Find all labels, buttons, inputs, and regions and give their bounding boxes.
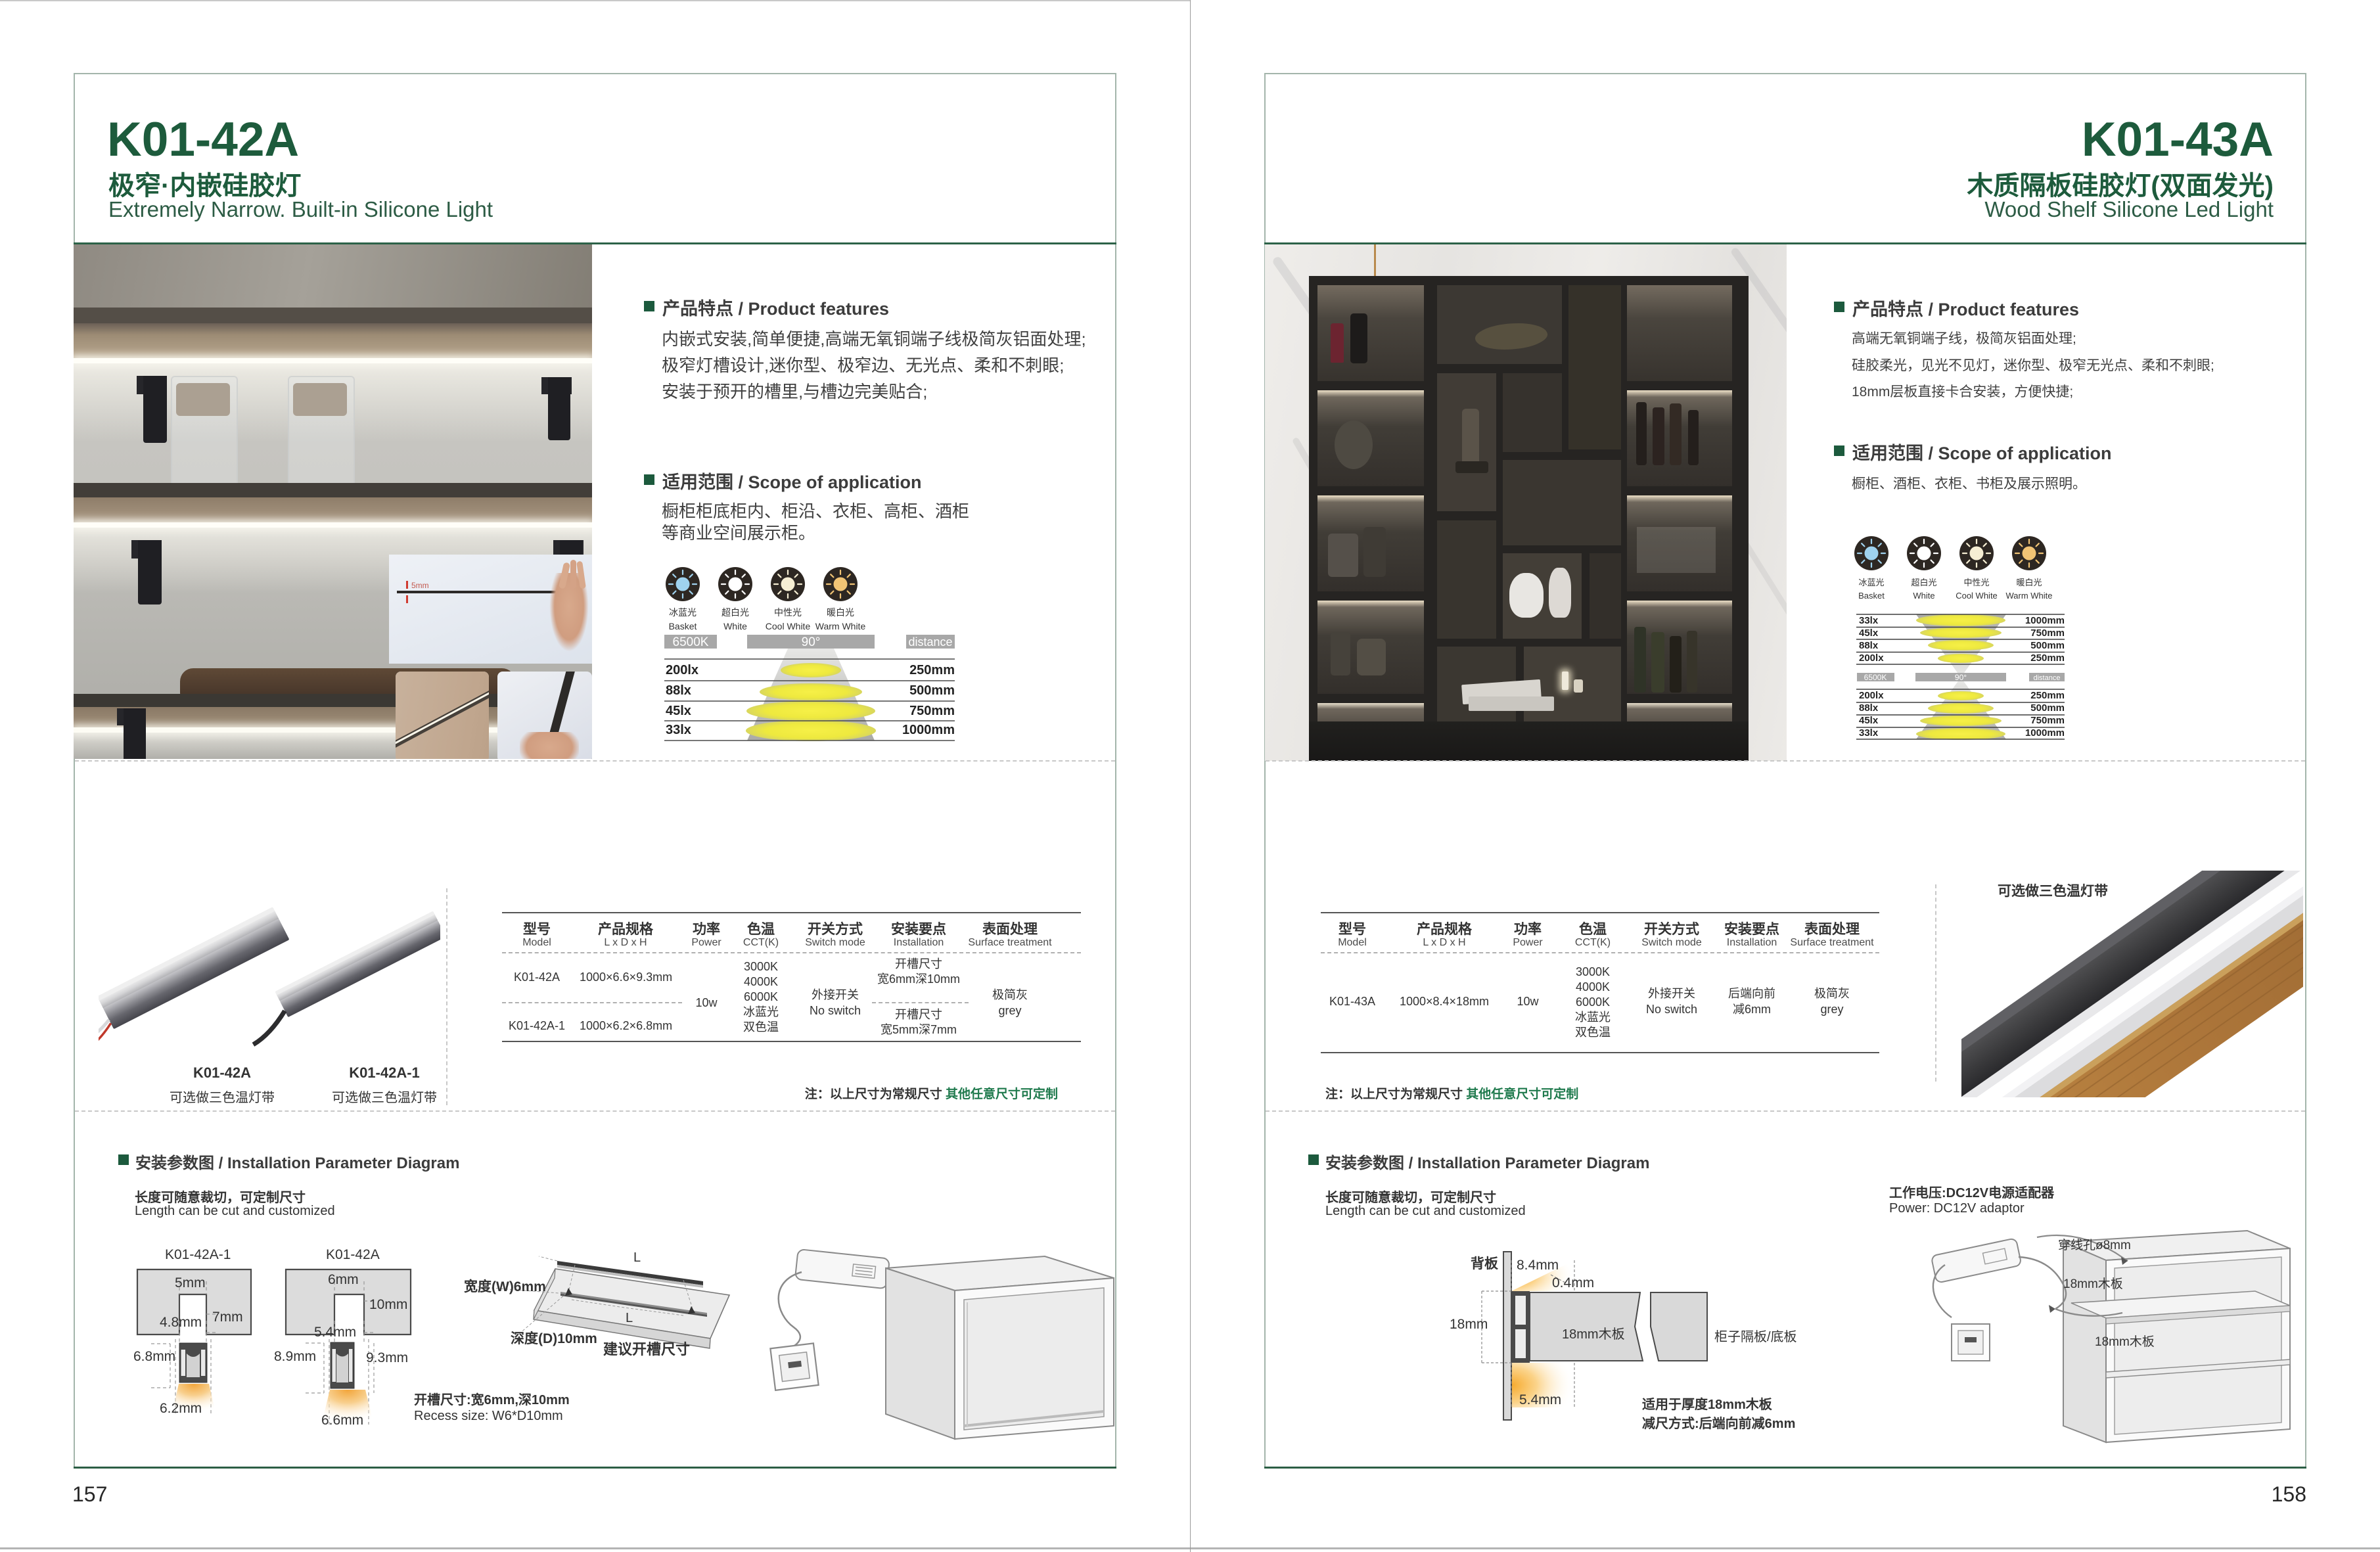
svg-text:6500K: 6500K: [673, 635, 709, 649]
svg-text:L: L: [626, 1311, 633, 1325]
svg-text:distance: distance: [2034, 674, 2061, 682]
svg-text:90°: 90°: [802, 635, 821, 649]
svg-text:90°: 90°: [1955, 673, 1967, 682]
svg-text:L: L: [633, 1250, 641, 1265]
svg-text:distance: distance: [908, 635, 952, 649]
svg-text:6500K: 6500K: [1864, 673, 1887, 682]
